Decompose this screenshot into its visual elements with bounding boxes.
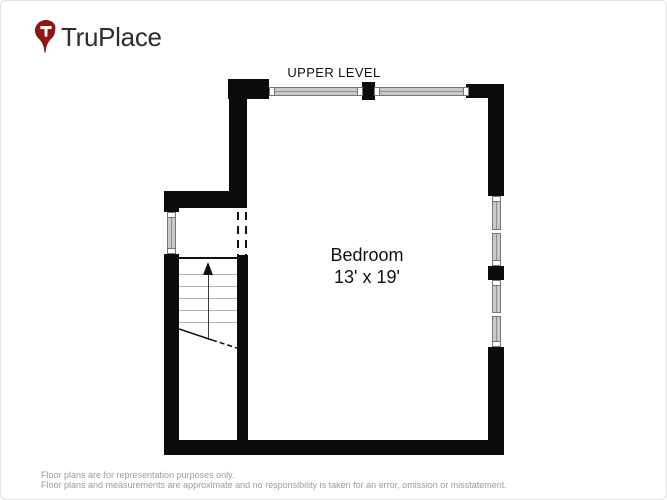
window-top-left — [269, 87, 363, 96]
wall-bottom — [164, 440, 504, 455]
window-glass-line — [380, 91, 463, 92]
room-name: Bedroom — [246, 244, 488, 266]
window-right-upper — [492, 196, 501, 266]
level-label: UPPER LEVEL — [164, 65, 504, 80]
window-cap — [269, 87, 275, 96]
window-cap — [492, 341, 501, 347]
window-glass-line — [275, 91, 357, 92]
room-label: Bedroom 13' x 19' — [246, 244, 488, 288]
stair-top-edge — [179, 257, 237, 259]
window-right-lower — [492, 280, 501, 347]
window-cap — [463, 87, 469, 96]
window-glass-line — [171, 218, 172, 248]
room-dimensions: 13' x 19' — [246, 266, 488, 288]
wall-left-lower — [164, 254, 179, 455]
window-left — [167, 212, 176, 254]
up-arrow-icon — [203, 262, 213, 275]
window-cap — [357, 87, 363, 96]
wall-right-lower — [488, 347, 504, 455]
window-cap — [374, 87, 380, 96]
window-top-right — [374, 87, 469, 96]
page: TruPlace UPPER LEVEL — [0, 0, 667, 500]
window-cap — [167, 212, 176, 218]
window-cap — [492, 280, 501, 286]
wall-left-upper — [229, 79, 247, 208]
window-cap — [492, 260, 501, 266]
disclaimer-line-1: Floor plans are for representation purpo… — [41, 470, 507, 480]
opening-dashed-line — [237, 212, 239, 255]
disclaimer-line-2: Floor plans and measurements are approxi… — [41, 480, 507, 490]
window-cap — [167, 248, 176, 254]
wall-right-mid-block — [488, 266, 504, 280]
floor-plan: UPPER LEVEL — [1, 1, 667, 500]
footer-disclaimer: Floor plans are for representation purpo… — [41, 470, 507, 490]
window-divider — [492, 312, 501, 317]
wall-right-upper — [488, 84, 504, 196]
window-cap — [492, 196, 501, 202]
stair-break-line — [179, 327, 237, 349]
window-divider — [492, 229, 501, 234]
